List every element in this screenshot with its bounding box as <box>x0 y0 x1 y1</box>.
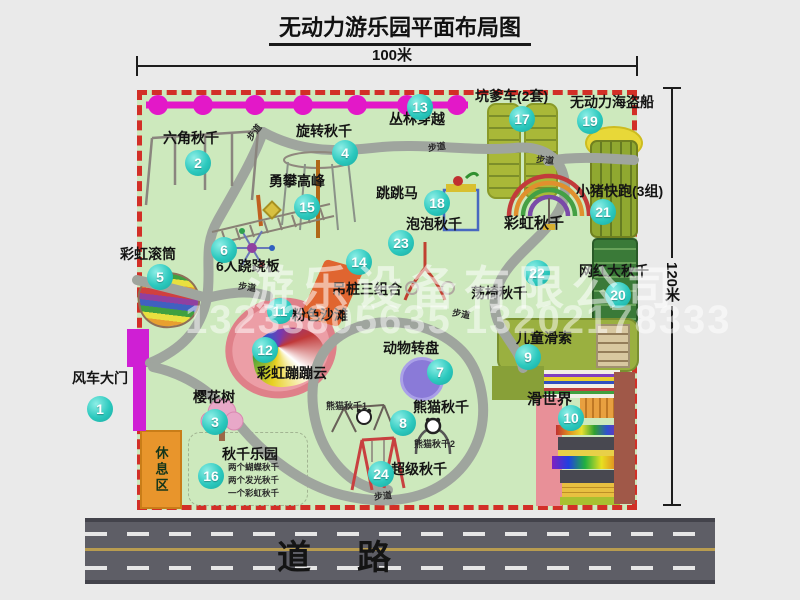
top-dimension-tick-left <box>136 56 138 76</box>
top-dimension-line <box>137 65 637 67</box>
attraction-19-label: 无动力海盗船 <box>570 95 654 110</box>
right-dimension-tick-top <box>663 87 681 89</box>
rest-area-box: 休息区 <box>140 430 182 509</box>
attraction-3-badge: 3 <box>202 409 228 435</box>
slide-world-orange-band <box>580 398 618 418</box>
swing-park-note-3: 一个彩虹秋千 <box>228 489 279 498</box>
rest-area-label: 休息区 <box>152 446 171 494</box>
top-dimension-tick-right <box>636 56 638 76</box>
attraction-7-badge: 7 <box>427 359 453 385</box>
windmill-gate-stem <box>133 367 146 431</box>
slide-world-rainbow-grad <box>552 456 618 469</box>
walkway-label-3: 步道 <box>536 155 555 167</box>
attraction-24-label: 超级秋千 <box>391 462 447 477</box>
windmill-gate-top <box>127 329 149 367</box>
attraction-16-badge: 16 <box>198 463 224 489</box>
attraction-3-label: 樱花树 <box>193 390 235 405</box>
attraction-5-badge: 5 <box>147 264 173 290</box>
right-dimension-tick-bottom <box>663 504 681 506</box>
attraction-1-label: 风车大门 <box>72 371 128 386</box>
attraction-2-badge: 2 <box>185 150 211 176</box>
attraction-24-badge: 24 <box>368 461 394 487</box>
slide-world-brown-band <box>614 372 635 504</box>
attraction-19-badge: 19 <box>577 108 603 134</box>
attraction-8-badge: 8 <box>390 410 416 436</box>
attraction-23-label: 泡泡秋千 <box>406 217 462 232</box>
attraction-11-label: 粉色沙滩 <box>292 308 348 323</box>
slide-world-green-band <box>560 497 620 505</box>
attraction-4-label: 旋转秋千 <box>296 124 352 139</box>
road: 道路 <box>85 518 715 584</box>
attraction-22-label: 荡椅秋千 <box>471 286 527 301</box>
attraction-7-label: 动物转盘 <box>383 341 439 356</box>
slide-world-yellow-wavy <box>562 483 620 497</box>
attraction-23-badge: 23 <box>388 230 414 256</box>
attraction-5-label: 彩虹滚筒 <box>120 247 176 262</box>
attraction-14-badge: 14 <box>346 249 372 275</box>
attraction-4-badge: 4 <box>332 140 358 166</box>
panda-swing-2-label: 熊猫秋千2 <box>414 440 455 450</box>
attraction-8-label: 熊猫秋千 <box>413 400 469 415</box>
attraction-17-label: 坑爹车(2套) <box>475 89 548 104</box>
attraction-6-badge: 6 <box>211 237 237 263</box>
attraction-15-badge: 15 <box>294 194 320 220</box>
swing-park-note-2: 两个发光秋千 <box>228 476 279 485</box>
height-dimension-label: 120米 <box>661 258 682 306</box>
attraction-1-badge: 1 <box>87 396 113 422</box>
slide-world-dark-1 <box>558 437 620 450</box>
attraction-21-badge: 21 <box>590 199 616 225</box>
attraction-12-label: 彩虹蹦蹦云 <box>257 366 327 381</box>
panda-swing-1-label: 熊猫秋千1 <box>326 402 367 412</box>
zipline-ladder-platform <box>596 324 630 368</box>
attraction-12-badge: 12 <box>252 337 278 363</box>
rainbow-swing-label: 彩虹秋千 <box>504 216 564 233</box>
attraction-15-label: 勇攀高峰 <box>269 174 325 189</box>
width-dimension-label: 100米 <box>368 44 416 65</box>
attraction-9-badge: 9 <box>515 344 541 370</box>
attraction-10-badge: 10 <box>558 405 584 431</box>
attraction-22-badge: 22 <box>524 260 550 286</box>
attraction-20-label: 网红大秋千 <box>579 264 649 279</box>
attraction-14-label: 吊桩三组合 <box>332 282 402 297</box>
attraction-21-label: 小猪快跑(3组) <box>576 184 663 199</box>
walkway-label-6: 步道 <box>374 491 393 503</box>
attraction-17-badge: 17 <box>509 106 535 132</box>
swing-park-note-1: 两个蝴蝶秋千 <box>228 463 279 472</box>
attraction-2-label: 六角秋千 <box>163 131 219 146</box>
slide-world-dark-2 <box>560 470 620 483</box>
attraction-20-badge: 20 <box>605 282 631 308</box>
attraction-11-badge: 11 <box>267 298 293 324</box>
page-title: 无动力游乐园平面布局图 <box>0 10 800 42</box>
attraction-18-label: 跳跳马 <box>376 186 418 201</box>
attraction-18-badge: 18 <box>424 190 450 216</box>
attraction-16-label: 秋千乐园 <box>222 447 278 462</box>
road-label: 道路 <box>277 530 437 579</box>
attraction-13-badge: 13 <box>407 94 433 120</box>
